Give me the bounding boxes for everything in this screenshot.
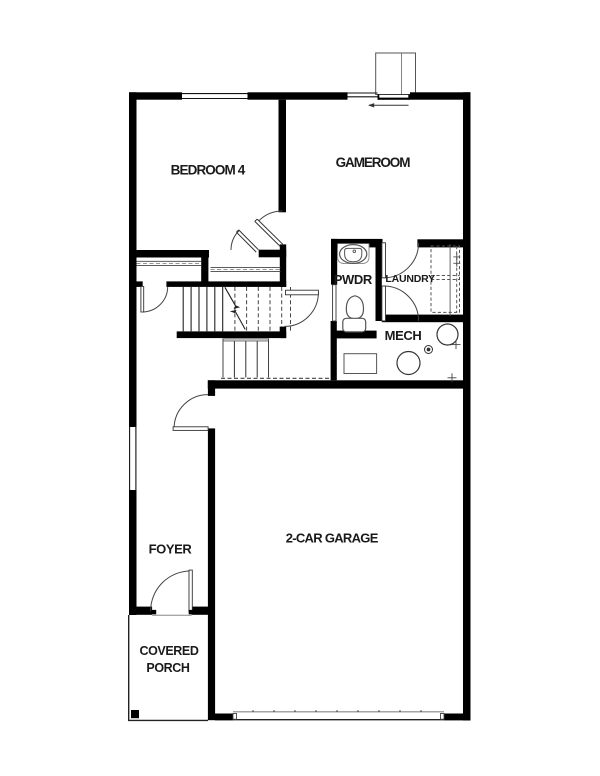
svg-text:2-CAR GARAGE: 2-CAR GARAGE: [286, 531, 379, 546]
svg-text:BEDROOM 4: BEDROOM 4: [171, 163, 246, 178]
svg-text:COVERED: COVERED: [139, 644, 198, 658]
svg-text:GAMEROOM: GAMEROOM: [336, 155, 411, 170]
svg-text:LAUNDRY: LAUNDRY: [385, 273, 435, 285]
svg-text:PORCH: PORCH: [146, 661, 190, 675]
svg-text:FOYER: FOYER: [149, 542, 193, 557]
svg-text:PWDR: PWDR: [334, 272, 373, 287]
svg-text:MECH: MECH: [385, 328, 422, 343]
